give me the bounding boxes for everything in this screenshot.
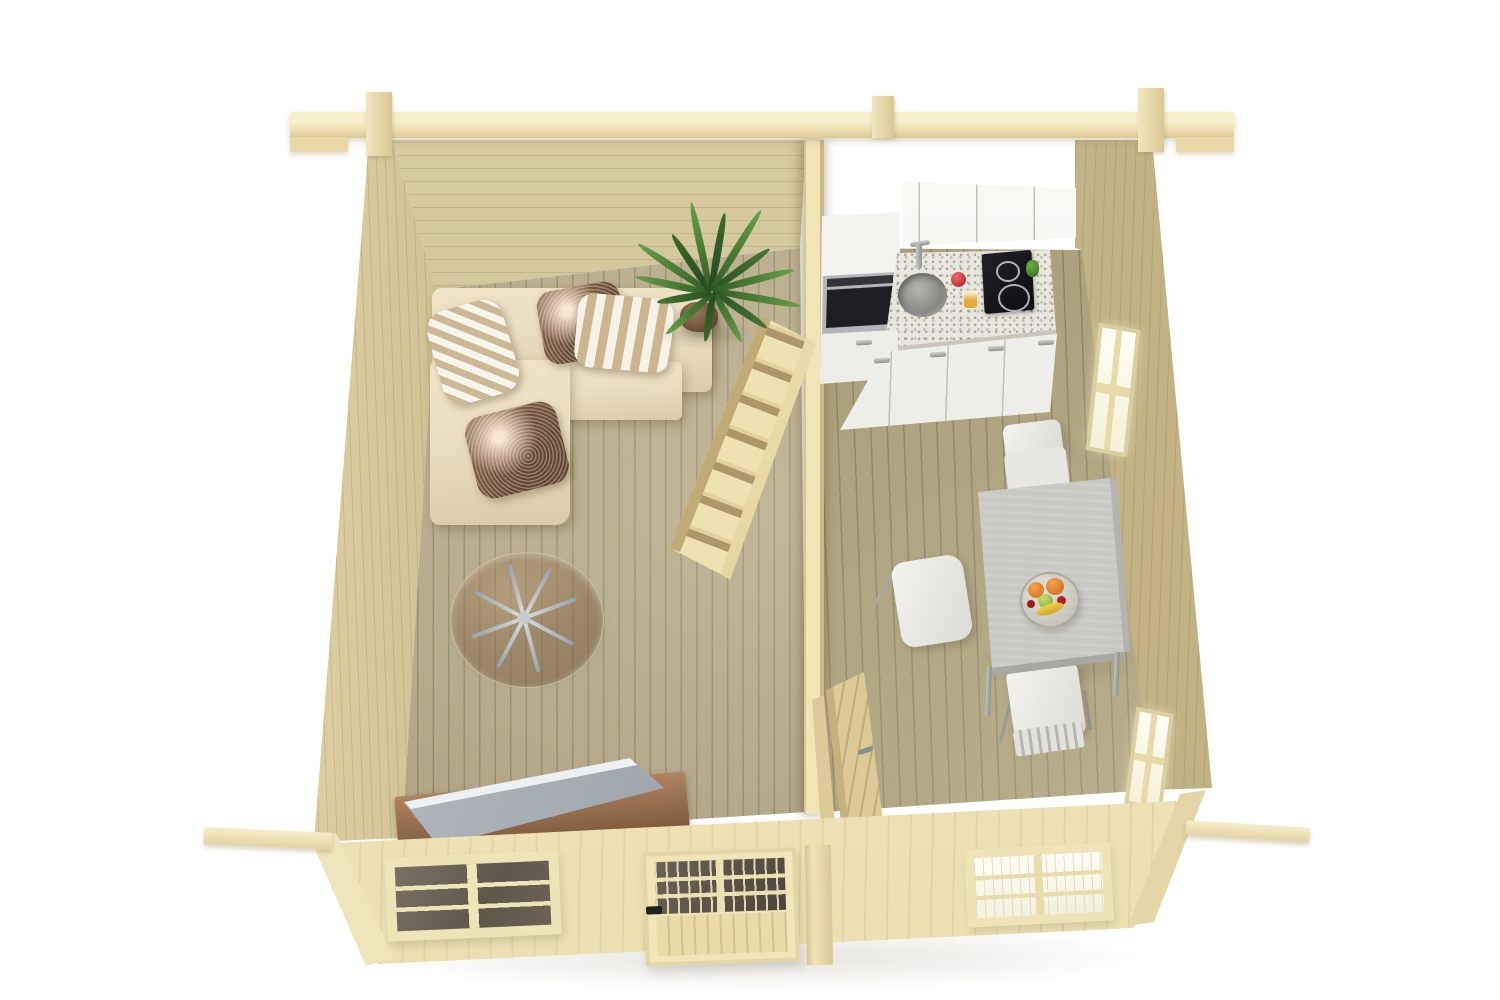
purlin-beam-bottom-left bbox=[204, 827, 333, 850]
entrance-door bbox=[642, 847, 800, 966]
cooktop-burner-large bbox=[998, 284, 1030, 312]
red-cup bbox=[951, 272, 966, 287]
entrance-door-handle bbox=[646, 906, 662, 915]
dining-chair-left bbox=[890, 553, 975, 649]
partition-post-top bbox=[872, 96, 894, 138]
faucet bbox=[916, 243, 922, 269]
entrance-door-glass-panes bbox=[654, 858, 786, 915]
coffee-table-leg-hub bbox=[518, 612, 530, 624]
beam-tip-left bbox=[290, 137, 348, 152]
entrance-door-lower-planks bbox=[656, 912, 787, 957]
front-window-left bbox=[384, 850, 561, 942]
cooktop-burner-small bbox=[996, 261, 1020, 282]
front-window-right bbox=[964, 842, 1114, 928]
corner-post-top-right bbox=[1138, 88, 1164, 152]
beam-tip-right bbox=[1176, 137, 1234, 152]
top-wall-beam bbox=[290, 112, 1234, 138]
purlin-beam-bottom-right bbox=[1186, 820, 1311, 843]
sofa-seat-section bbox=[556, 362, 682, 420]
partition-end-post bbox=[805, 845, 833, 965]
corner-post-top-left bbox=[366, 92, 392, 156]
juice-glass bbox=[963, 290, 978, 309]
round-kitchen-sink bbox=[898, 273, 947, 317]
cherry bbox=[1027, 600, 1035, 608]
orange-fruit bbox=[1046, 578, 1064, 595]
green-pepper bbox=[1026, 260, 1039, 277]
cabin-floorplan-render bbox=[0, 0, 1500, 1000]
